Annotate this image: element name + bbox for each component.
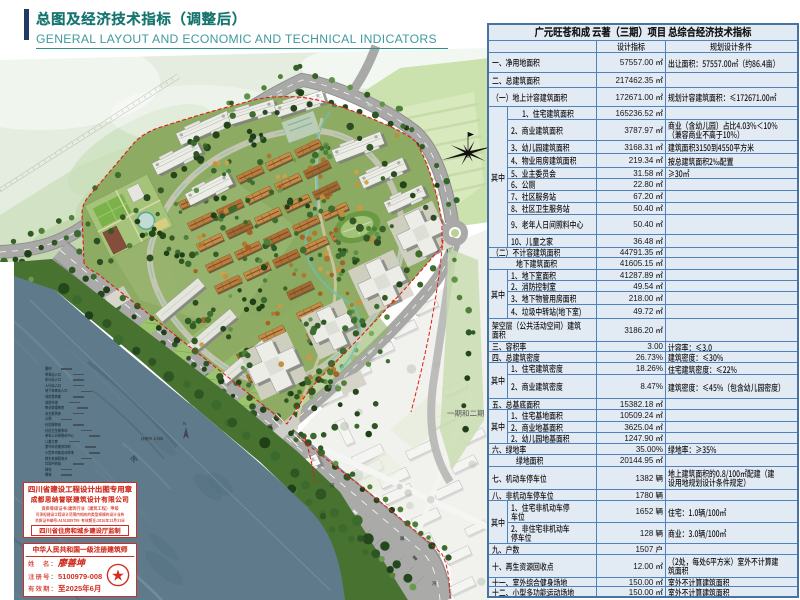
svg-text:红: 红	[332, 103, 337, 109]
svg-text:比例尺 1:500: 比例尺 1:500	[141, 436, 163, 442]
svg-text:河: 河	[432, 581, 437, 587]
svg-text:N: N	[183, 421, 186, 426]
svg-text:一期和二期: 一期和二期	[447, 408, 485, 419]
svg-text:河: 河	[330, 483, 335, 489]
svg-text:滨: 滨	[268, 424, 273, 430]
svg-text:路: 路	[400, 536, 405, 542]
